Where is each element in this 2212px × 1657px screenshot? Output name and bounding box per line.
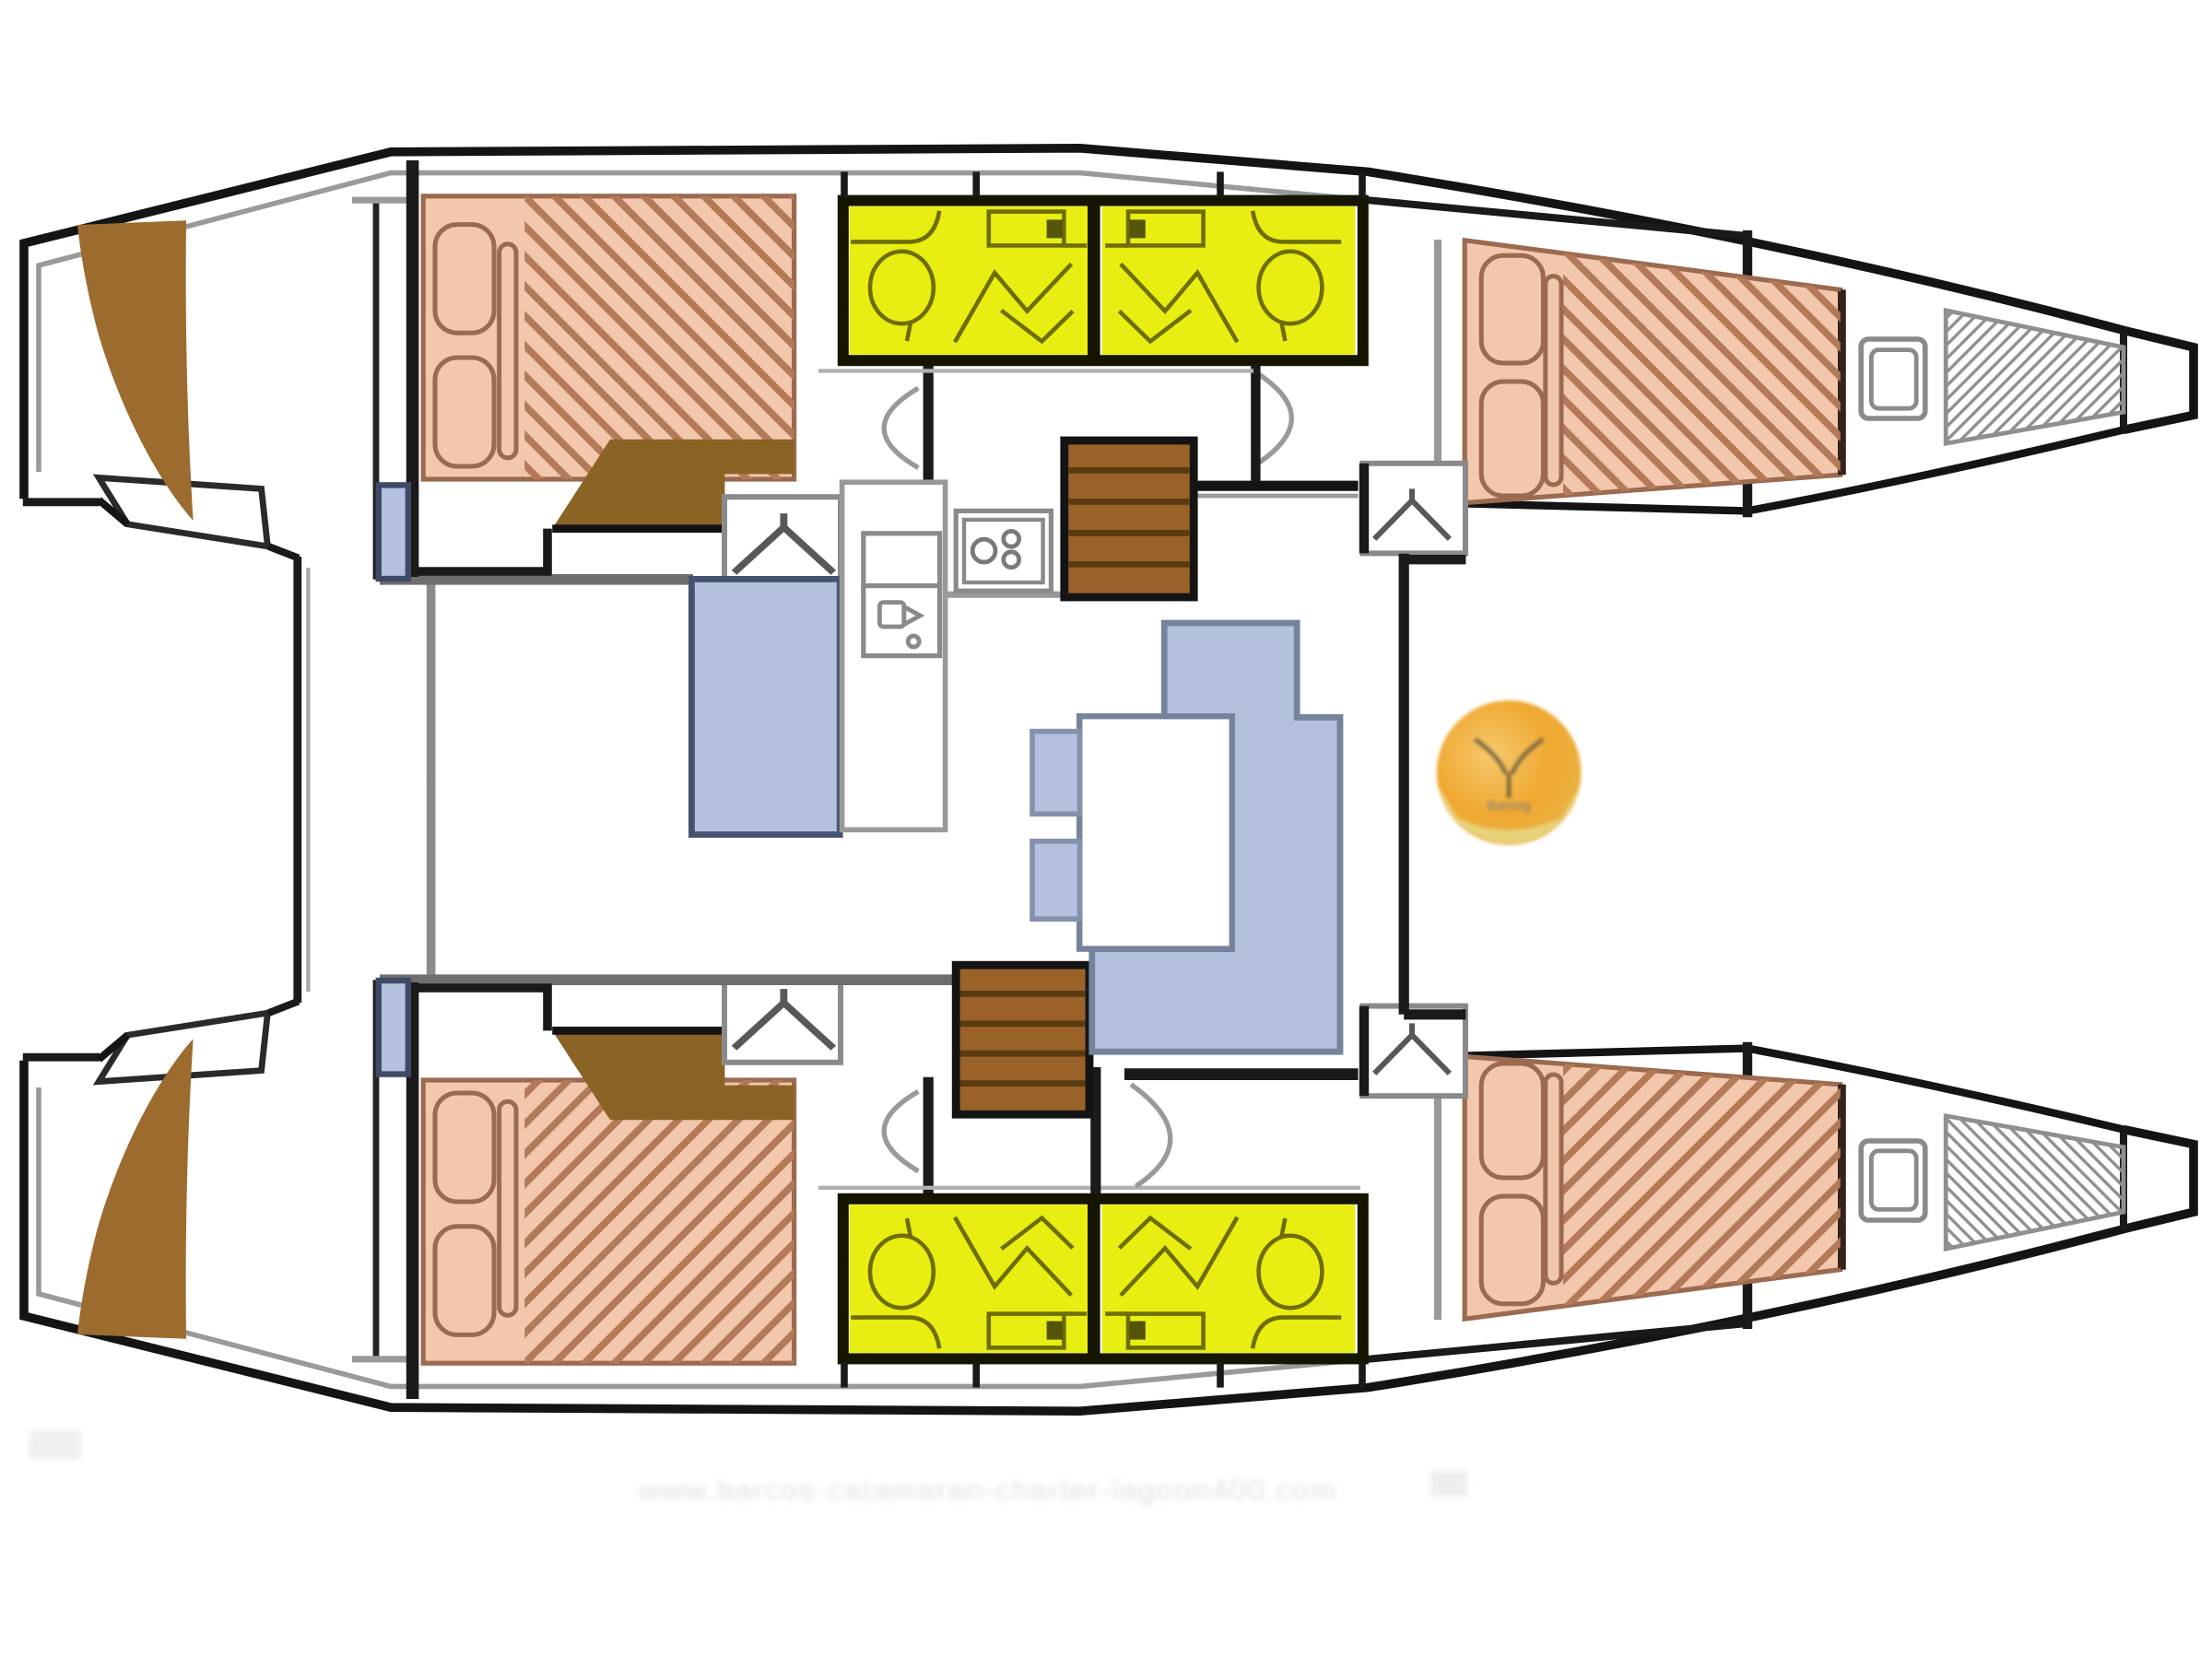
svg-text:www.barcos-catamaran-charter-l: www.barcos-catamaran-charter-lagoon400.c… <box>638 1473 1337 1507</box>
svg-text:Barong: Barong <box>1487 799 1531 814</box>
